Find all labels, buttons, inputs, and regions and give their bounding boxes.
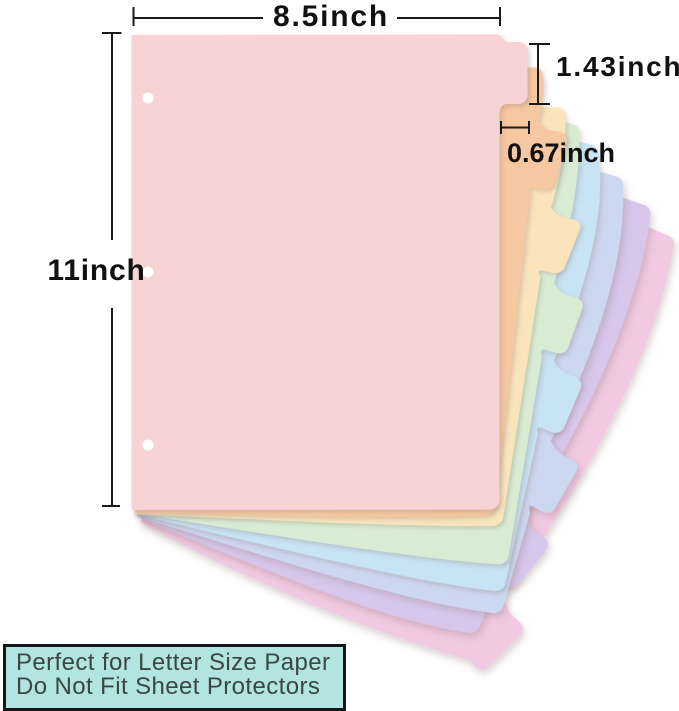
svg-text:11inch: 11inch	[47, 254, 145, 287]
svg-text:8.5inch: 8.5inch	[273, 0, 389, 33]
svg-text:0.67inch: 0.67inch	[507, 138, 615, 168]
svg-text:1.43inch: 1.43inch	[556, 51, 679, 82]
